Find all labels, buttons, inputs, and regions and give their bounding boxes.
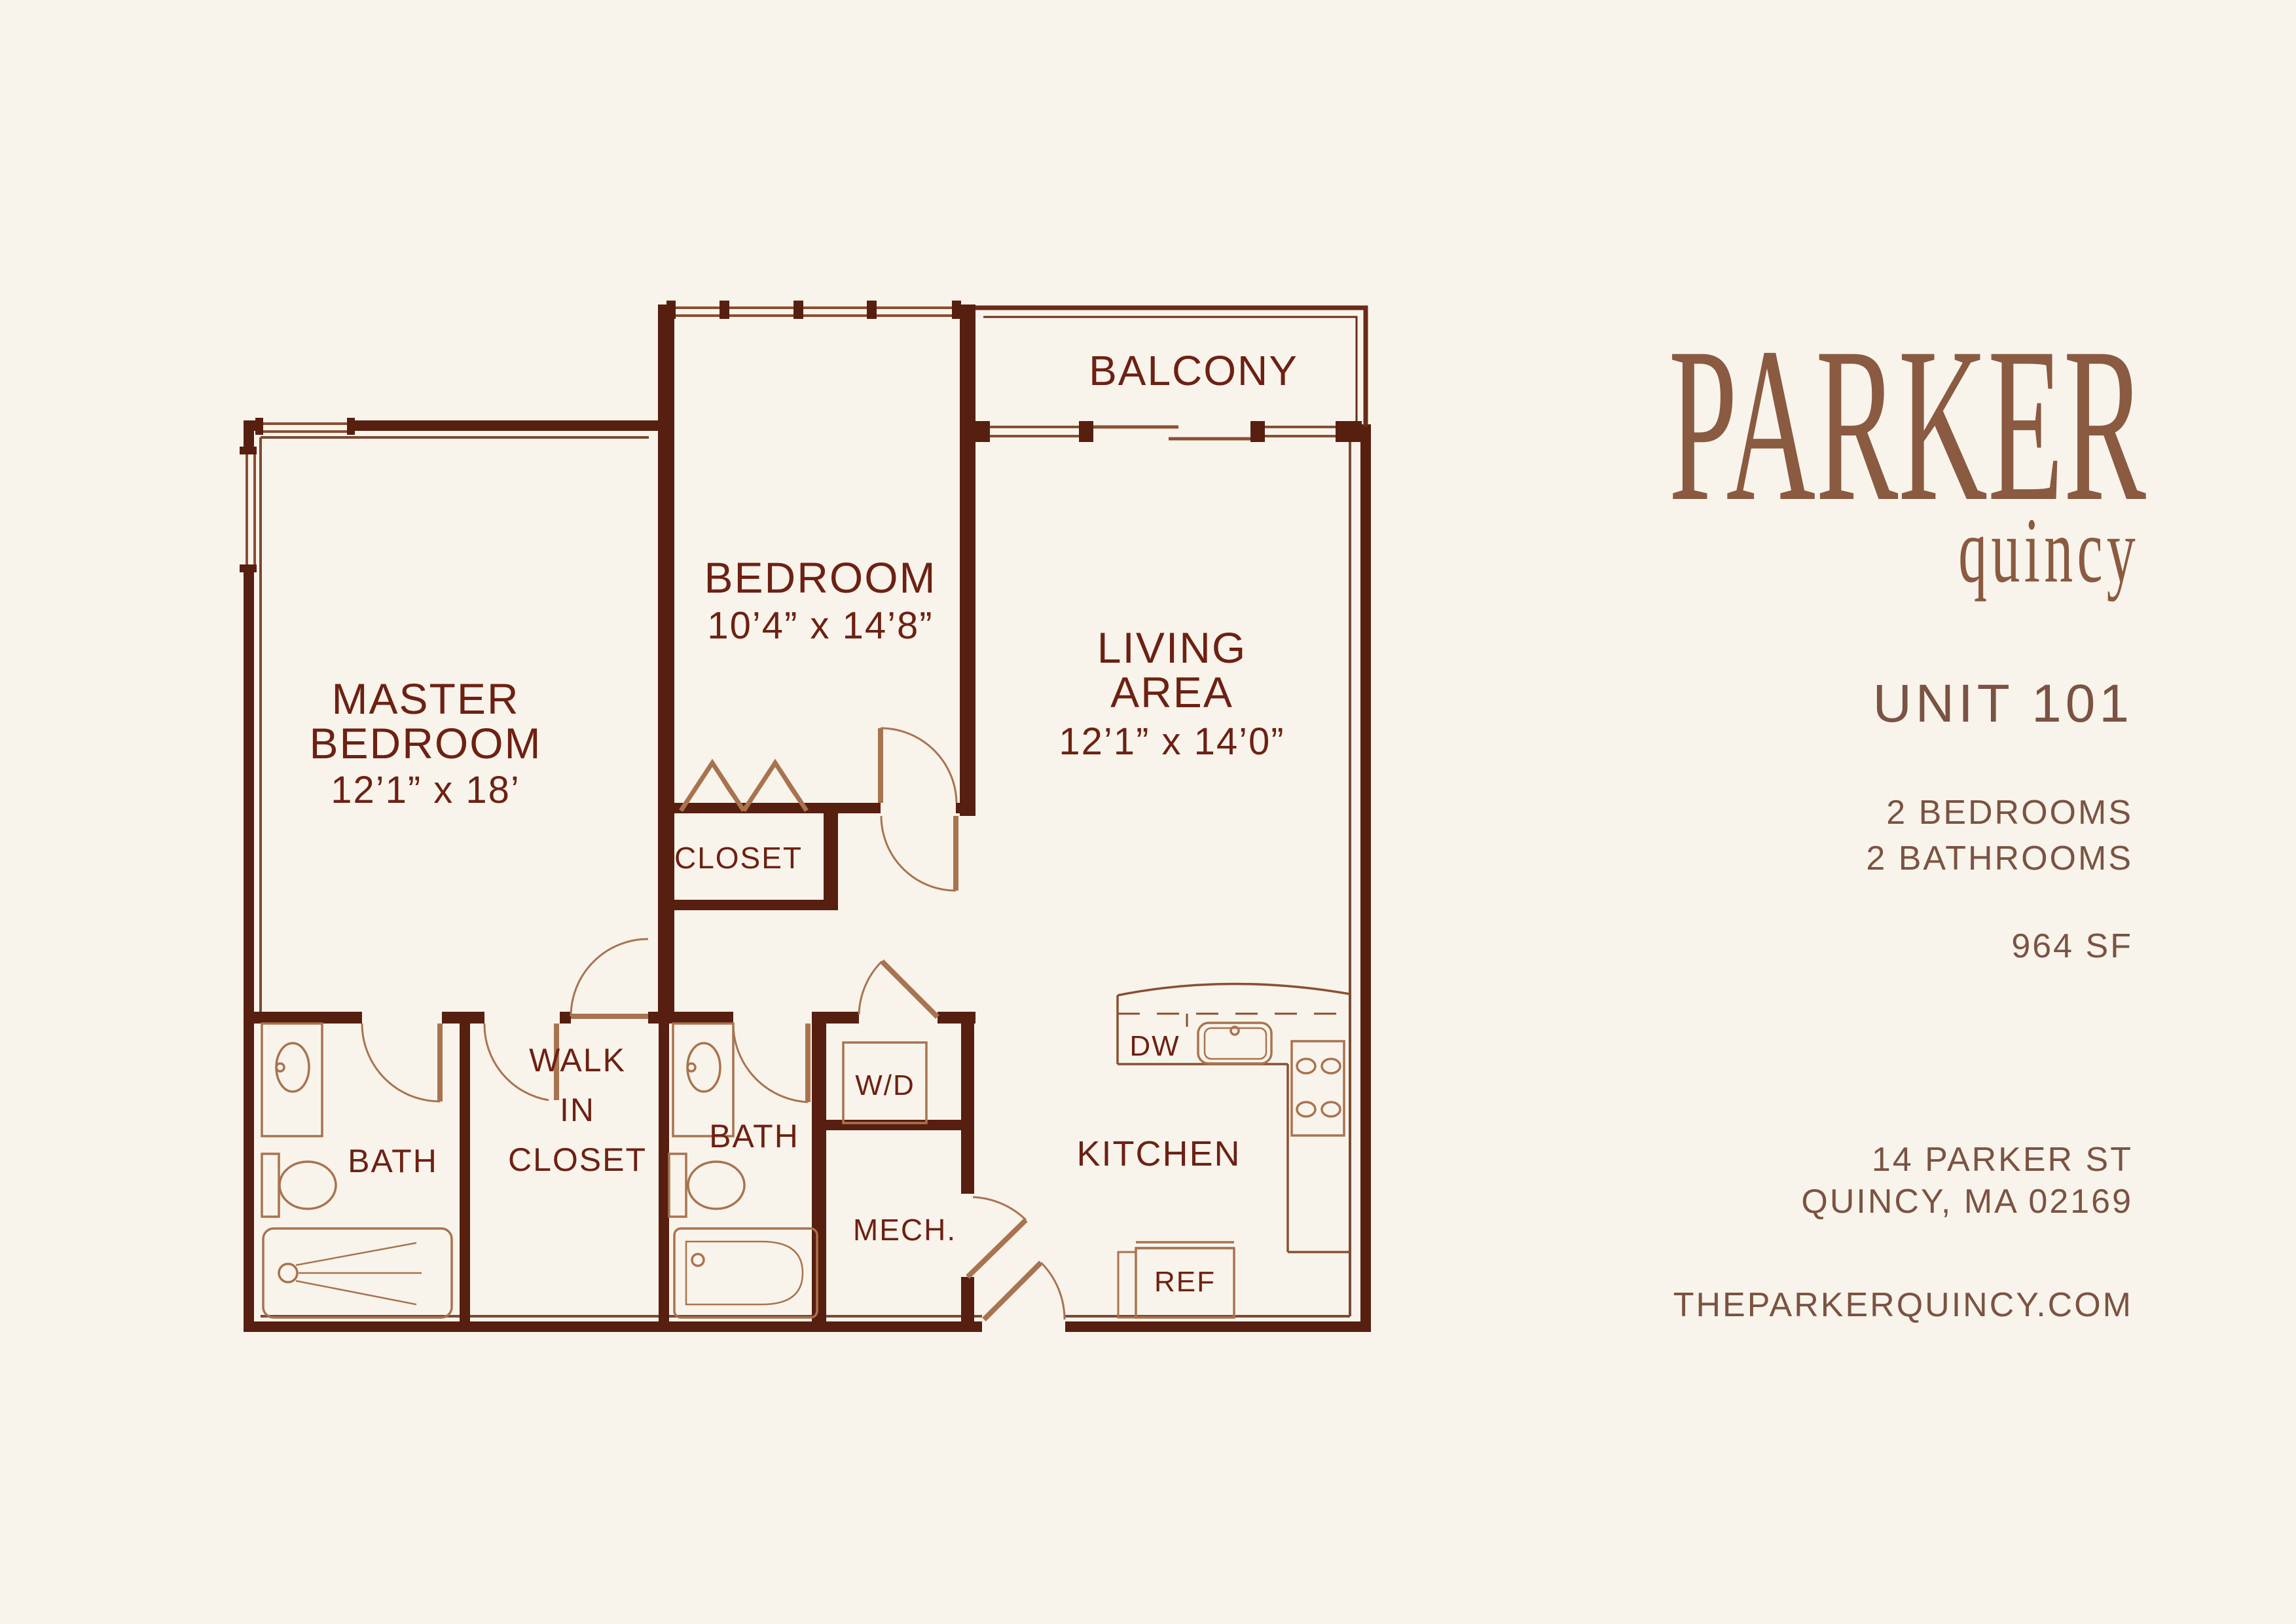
- website: THEPARKERQUINCY.COM: [1673, 1286, 2133, 1324]
- bath1-label: BATH: [348, 1143, 438, 1179]
- bath2-toilet-icon: [669, 1154, 744, 1217]
- bedroom-top-windows-icon: [666, 301, 961, 319]
- kitchen-sink-icon: [1198, 1023, 1271, 1063]
- closet-label: CLOSET: [674, 841, 803, 875]
- stove-icon: [1292, 1041, 1344, 1135]
- master-bedroom-dims: 12’1” x 18’: [331, 769, 520, 811]
- entry-door-icon: [984, 1263, 1065, 1319]
- unit-bedrooms: 2 BEDROOMS: [1886, 794, 2133, 832]
- bath1-vanity-icon: [262, 1024, 322, 1136]
- mech-door-icon: [968, 1197, 1026, 1277]
- wd-label: W/D: [855, 1069, 915, 1101]
- master-left-window-icon: [240, 447, 257, 572]
- wic-label2: IN: [560, 1092, 595, 1128]
- living-top-wall: [972, 421, 1362, 442]
- bath1-shower-icon: [263, 1228, 452, 1318]
- ref-label: REF: [1154, 1266, 1216, 1298]
- bedroom-door-icon: [881, 728, 957, 803]
- sliding-door-icon: [1093, 427, 1252, 439]
- mech-label: MECH.: [853, 1213, 957, 1247]
- living-area-label2: AREA: [1110, 668, 1233, 716]
- balcony-label: BALCONY: [1089, 347, 1298, 394]
- living-area-dims: 12’1” x 14’0”: [1059, 720, 1285, 763]
- unit-area: 964 SF: [2011, 927, 2133, 965]
- master-bedroom-label2: BEDROOM: [309, 719, 541, 767]
- brand-sub: quincy: [1958, 499, 2140, 602]
- address-line1: 14 PARKER ST: [1872, 1141, 2133, 1179]
- bath1-toilet-icon: [262, 1154, 336, 1217]
- room-labels: MASTER BEDROOM 12’1” x 18’ BEDROOM 10’4”…: [309, 347, 1298, 1298]
- bedroom-dims: 10’4” x 14’8”: [707, 604, 933, 647]
- floorplan-canvas: MASTER BEDROOM 12’1” x 18’ BEDROOM 10’4”…: [0, 0, 2296, 1624]
- wic-label3: CLOSET: [508, 1141, 647, 1178]
- master-top-window-icon: [255, 418, 355, 435]
- brand-block: PARKER quincy: [1669, 303, 2147, 602]
- unit-info-block: UNIT 101 2 BEDROOMS 2 BATHROOMS 964 SF: [1866, 674, 2133, 965]
- bath2-label: BATH: [709, 1118, 799, 1154]
- dw-label: DW: [1129, 1030, 1180, 1062]
- wic-label: WALK: [529, 1042, 626, 1079]
- wd-door-icon: [859, 961, 938, 1017]
- master-door-icon: [571, 939, 648, 1016]
- kitchen-label: KITCHEN: [1076, 1134, 1241, 1173]
- flyer-page: MASTER BEDROOM 12’1” x 18’ BEDROOM 10’4”…: [0, 0, 2296, 1624]
- bedroom-label: BEDROOM: [704, 553, 936, 602]
- unit-bathrooms: 2 BATHROOMS: [1866, 840, 2133, 877]
- address-line2: QUINCY, MA 02169: [1801, 1183, 2133, 1221]
- living-area-label: LIVING: [1097, 623, 1247, 672]
- kitchen-counter-icon: [1118, 984, 1350, 1252]
- bath2-door-icon: [733, 1024, 808, 1102]
- unit-title: UNIT 101: [1873, 674, 2133, 733]
- bath1-door-icon: [362, 1024, 440, 1101]
- address-block: 14 PARKER ST QUINCY, MA 02169 THEPARKERQ…: [1673, 1141, 2133, 1324]
- hall-door-icon: [881, 816, 956, 891]
- bath2-tub-icon: [674, 1228, 817, 1318]
- master-bedroom-label: MASTER: [331, 674, 519, 723]
